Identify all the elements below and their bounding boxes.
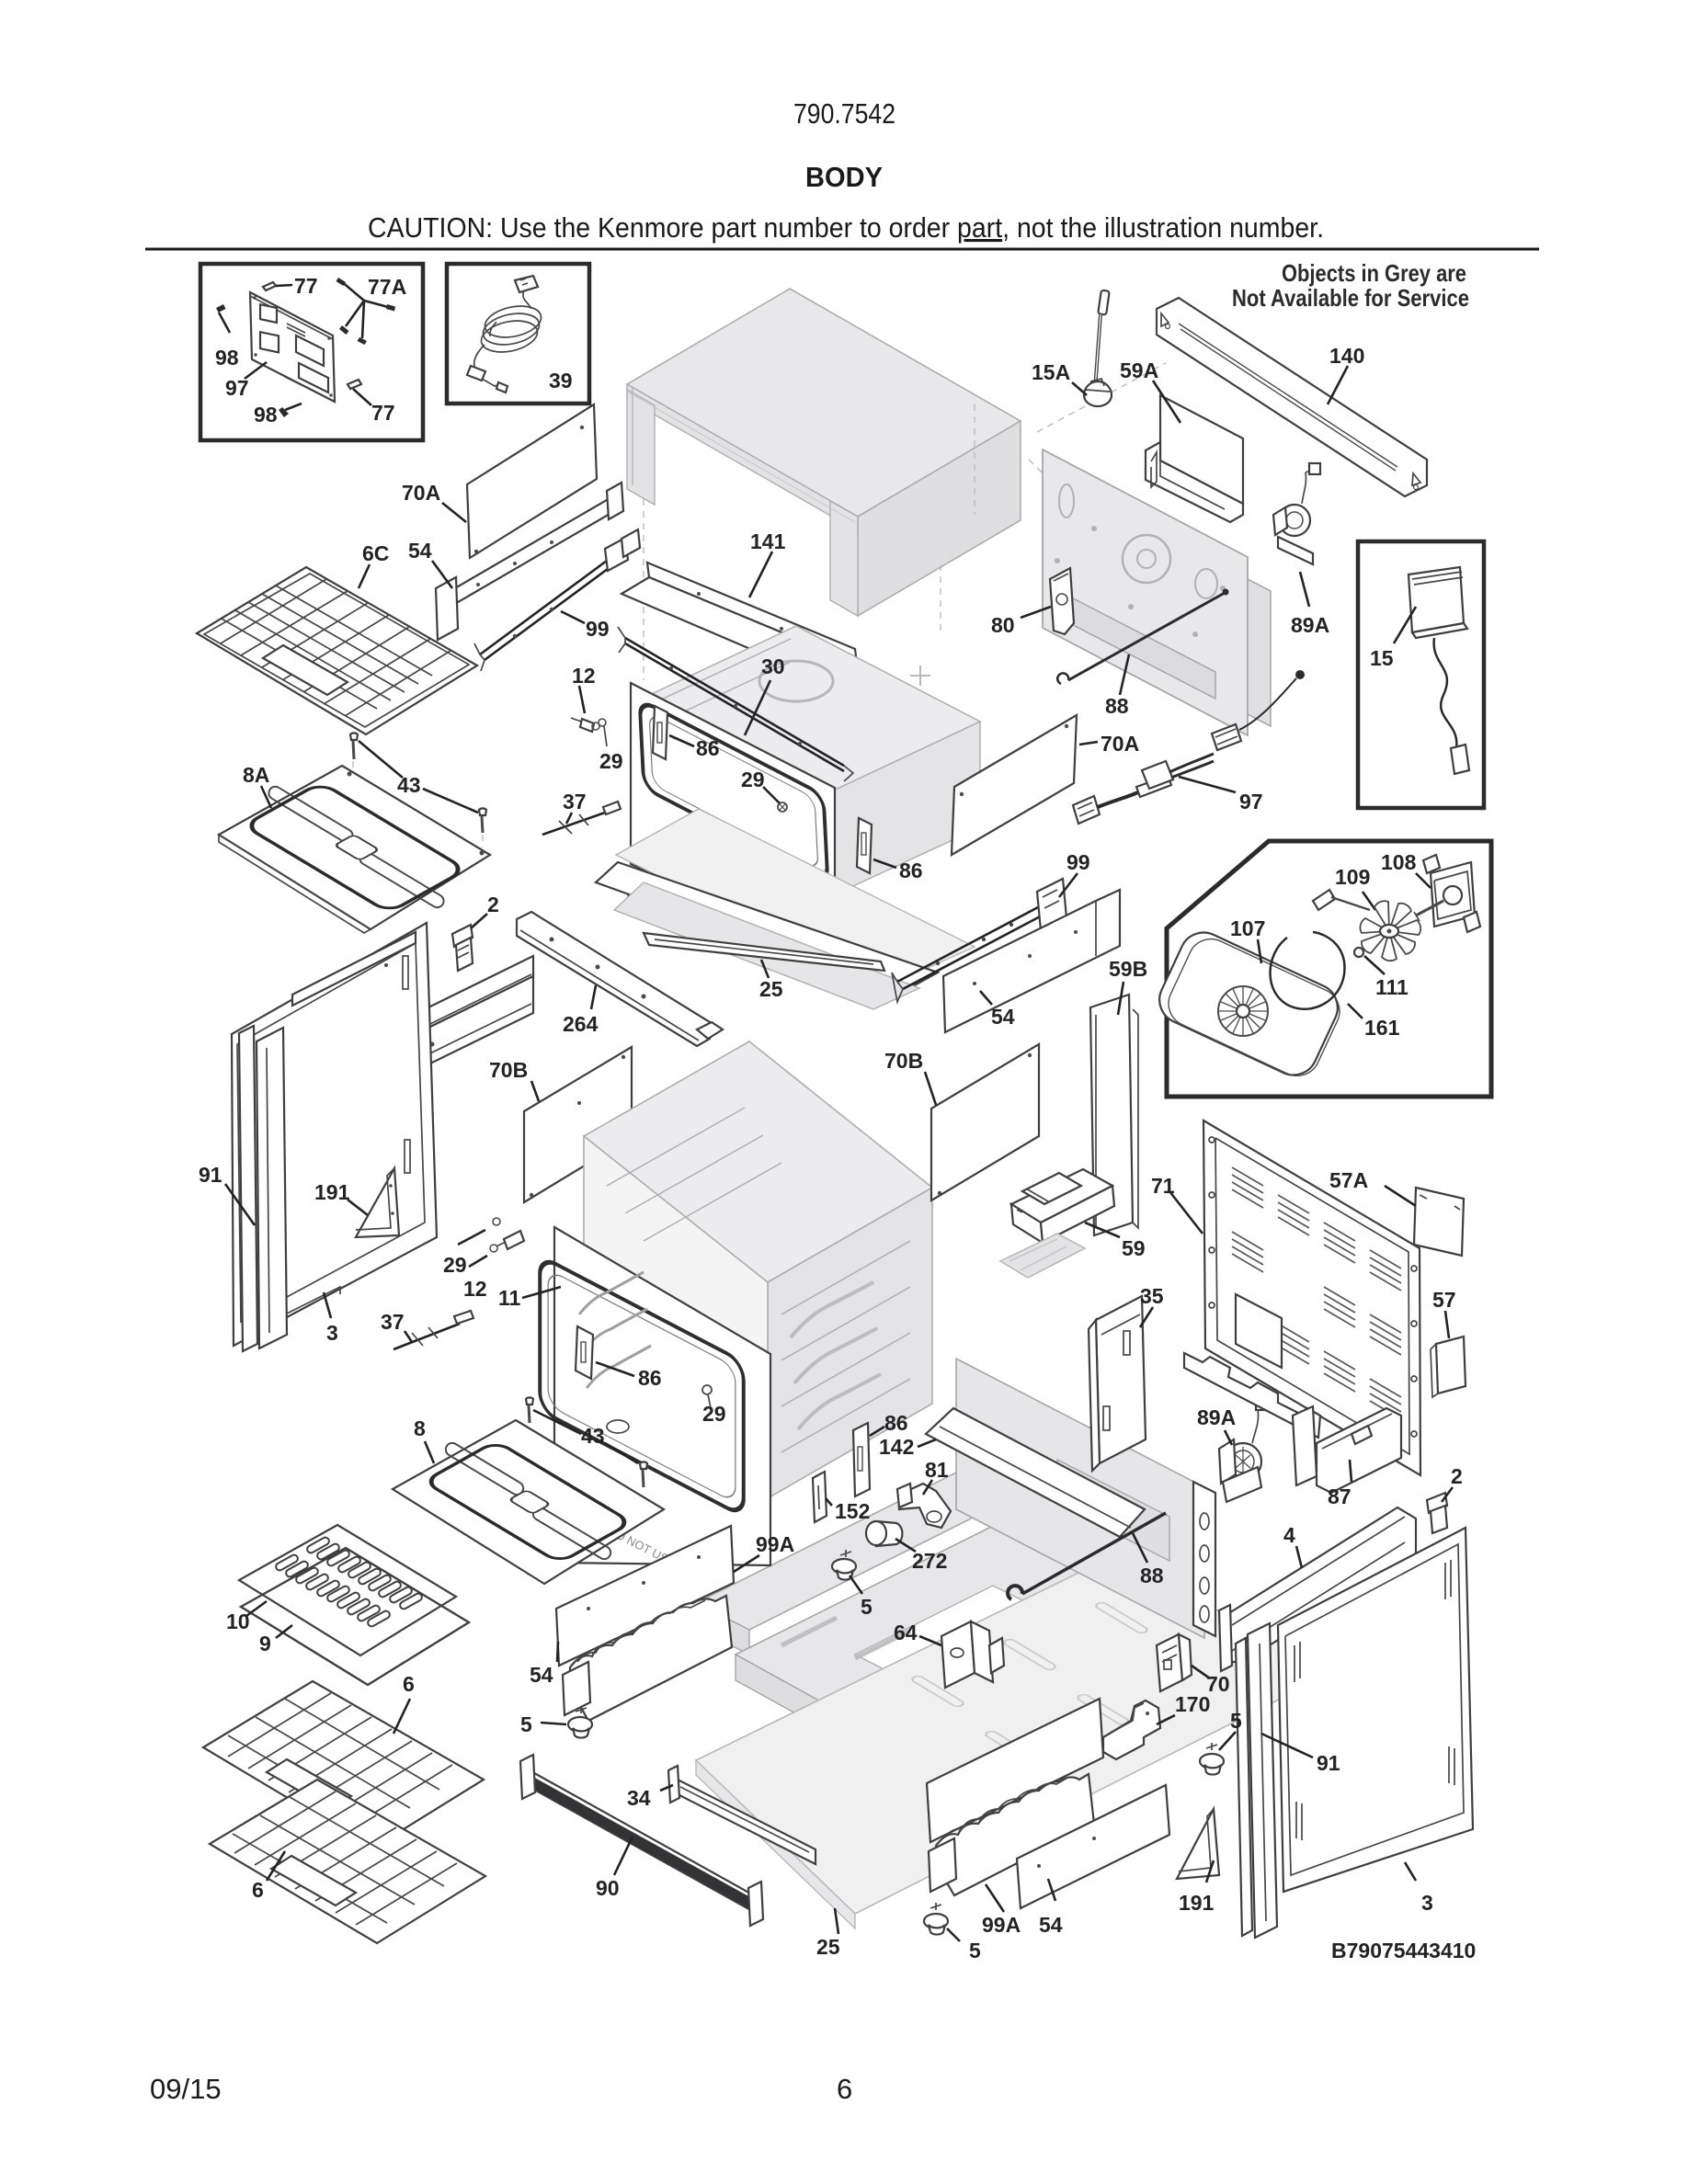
svg-text:59A: 59A [1120, 358, 1158, 382]
svg-text:88: 88 [1140, 1564, 1164, 1587]
svg-text:43: 43 [581, 1424, 605, 1448]
svg-text:54: 54 [408, 539, 432, 563]
svg-text:57A: 57A [1329, 1168, 1368, 1192]
svg-text:140: 140 [1329, 344, 1364, 368]
svg-text:6: 6 [252, 1878, 264, 1902]
svg-text:37: 37 [563, 790, 587, 813]
svg-text:BODY: BODY [805, 161, 883, 193]
svg-text:6: 6 [837, 2073, 852, 2105]
svg-text:99: 99 [1066, 850, 1090, 874]
svg-text:12: 12 [463, 1277, 487, 1301]
svg-text:8A: 8A [243, 763, 269, 787]
svg-text:64: 64 [894, 1621, 918, 1644]
svg-text:107: 107 [1230, 916, 1265, 940]
svg-text:15A: 15A [1032, 360, 1070, 384]
svg-text:2: 2 [1451, 1464, 1463, 1488]
svg-text:10: 10 [226, 1610, 250, 1633]
svg-text:71: 71 [1151, 1174, 1175, 1198]
svg-text:77: 77 [371, 401, 395, 425]
svg-text:CAUTION: Use the Kenmore part: CAUTION: Use the Kenmore part number to … [368, 211, 1324, 244]
svg-text:25: 25 [759, 977, 783, 1001]
svg-text:39: 39 [549, 369, 573, 392]
svg-text:191: 191 [314, 1180, 350, 1204]
svg-text:87: 87 [1328, 1484, 1352, 1508]
svg-text:8: 8 [414, 1416, 426, 1440]
svg-text:70A: 70A [1101, 732, 1139, 756]
svg-text:25: 25 [816, 1935, 840, 1959]
svg-text:3: 3 [1421, 1891, 1433, 1915]
svg-text:99A: 99A [982, 1913, 1021, 1937]
svg-text:29: 29 [702, 1402, 726, 1426]
svg-text:89A: 89A [1291, 613, 1329, 637]
svg-text:91: 91 [1317, 1751, 1340, 1775]
svg-text:12: 12 [572, 664, 596, 688]
svg-text:99: 99 [586, 617, 610, 641]
svg-text:161: 161 [1364, 1016, 1400, 1040]
svg-text:109: 109 [1335, 865, 1370, 889]
svg-text:29: 29 [741, 768, 765, 791]
svg-text:54: 54 [1039, 1913, 1063, 1937]
svg-text:15: 15 [1370, 646, 1394, 670]
svg-text:70B: 70B [884, 1049, 923, 1073]
svg-text:77A: 77A [368, 275, 406, 299]
svg-text:3: 3 [326, 1321, 338, 1345]
svg-text:9: 9 [259, 1632, 271, 1655]
svg-text:98: 98 [215, 346, 239, 370]
svg-text:30: 30 [761, 654, 785, 678]
svg-text:4: 4 [1283, 1523, 1295, 1547]
svg-text:89A: 89A [1197, 1405, 1236, 1429]
svg-text:88: 88 [1105, 694, 1129, 718]
svg-text:141: 141 [750, 529, 786, 553]
svg-text:Objects in Grey are: Objects in Grey are [1282, 259, 1466, 287]
svg-text:152: 152 [835, 1499, 870, 1523]
svg-text:86: 86 [899, 859, 923, 882]
svg-text:86: 86 [696, 736, 720, 760]
svg-text:54: 54 [530, 1663, 553, 1687]
svg-text:59B: 59B [1109, 957, 1147, 981]
svg-text:34: 34 [627, 1786, 651, 1810]
svg-text:70B: 70B [489, 1058, 528, 1082]
svg-text:97: 97 [1239, 790, 1263, 813]
svg-text:264: 264 [563, 1012, 599, 1036]
svg-text:90: 90 [596, 1876, 620, 1900]
svg-text:77: 77 [294, 274, 318, 298]
svg-text:191: 191 [1179, 1891, 1215, 1915]
svg-text:29: 29 [443, 1253, 467, 1277]
svg-text:108: 108 [1381, 850, 1417, 874]
svg-text:80: 80 [991, 613, 1015, 637]
svg-text:111: 111 [1375, 975, 1409, 999]
svg-text:29: 29 [599, 749, 623, 773]
svg-text:37: 37 [381, 1310, 405, 1334]
svg-text:43: 43 [397, 773, 421, 797]
svg-text:11: 11 [498, 1286, 521, 1310]
svg-text:142: 142 [879, 1435, 914, 1459]
svg-text:2: 2 [487, 893, 499, 916]
svg-text:86: 86 [884, 1411, 908, 1435]
svg-text:91: 91 [199, 1163, 222, 1187]
svg-text:81: 81 [925, 1458, 949, 1482]
svg-text:5: 5 [969, 1939, 981, 1962]
svg-text:59: 59 [1122, 1236, 1146, 1260]
svg-text:99A: 99A [756, 1532, 794, 1556]
svg-text:70A: 70A [402, 481, 440, 505]
svg-text:54: 54 [991, 1005, 1015, 1029]
svg-text:97: 97 [225, 376, 249, 400]
svg-text:6C: 6C [362, 541, 389, 565]
svg-text:98: 98 [254, 403, 278, 427]
svg-text:Not Available for Service: Not Available for Service [1232, 284, 1469, 312]
svg-text:B79075443410: B79075443410 [1331, 1939, 1476, 1962]
svg-text:6: 6 [403, 1672, 415, 1696]
svg-text:272: 272 [912, 1549, 947, 1573]
svg-text:57: 57 [1432, 1288, 1456, 1312]
svg-text:35: 35 [1140, 1284, 1164, 1308]
svg-text:5: 5 [861, 1595, 873, 1619]
svg-text:09/15: 09/15 [150, 2073, 222, 2105]
svg-text:790.7542: 790.7542 [793, 97, 895, 130]
svg-text:170: 170 [1175, 1692, 1210, 1716]
svg-text:5: 5 [520, 1712, 532, 1736]
svg-text:5: 5 [1230, 1709, 1242, 1733]
svg-text:86: 86 [638, 1366, 662, 1390]
